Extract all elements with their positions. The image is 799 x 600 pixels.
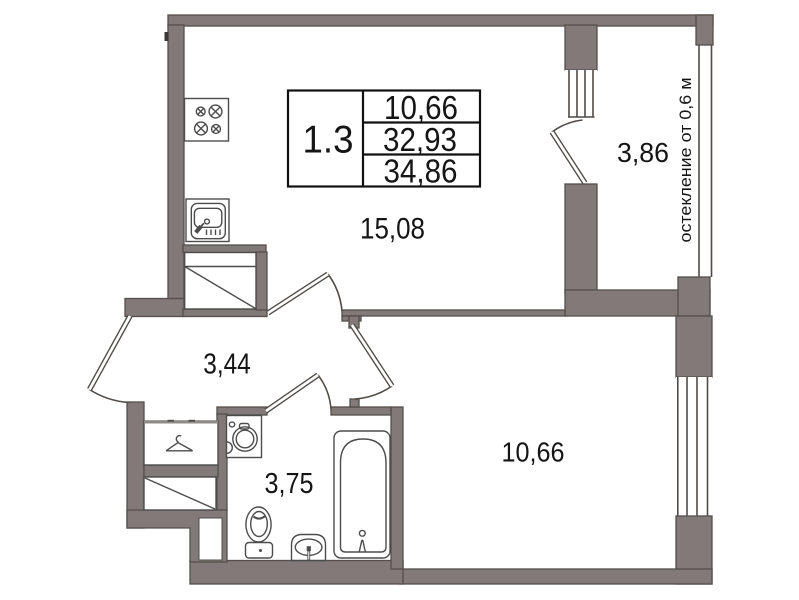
svg-text:3,44: 3,44 — [203, 348, 251, 380]
svg-text:1.3: 1.3 — [303, 119, 354, 162]
svg-text:остекление от 0,6 м: остекление от 0,6 м — [676, 78, 695, 243]
svg-text:10,66: 10,66 — [502, 437, 565, 468]
svg-text:3,86: 3,86 — [617, 137, 669, 168]
svg-text:34,86: 34,86 — [384, 154, 458, 191]
svg-text:3,75: 3,75 — [265, 468, 314, 500]
svg-text:15,08: 15,08 — [360, 212, 425, 245]
